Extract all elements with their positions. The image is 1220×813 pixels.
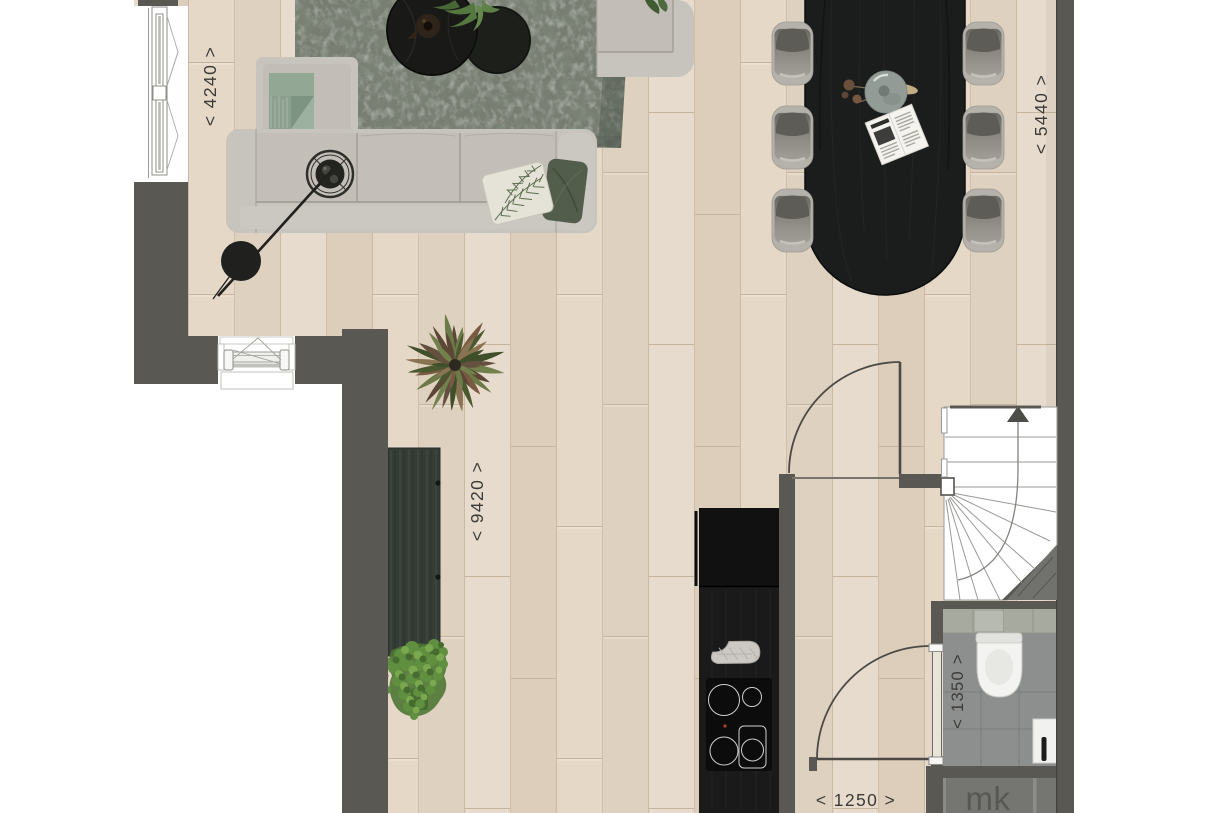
svg-text:< 9420 >: < 9420 > (467, 461, 487, 541)
svg-text:< 1250 >: < 1250 > (816, 790, 896, 810)
svg-text:< 5440 >: < 5440 > (1031, 74, 1051, 154)
svg-text:< 4240 >: < 4240 > (200, 46, 220, 126)
svg-text:mk: mk (966, 780, 1011, 813)
svg-text:< 1350 >: < 1350 > (949, 653, 967, 729)
